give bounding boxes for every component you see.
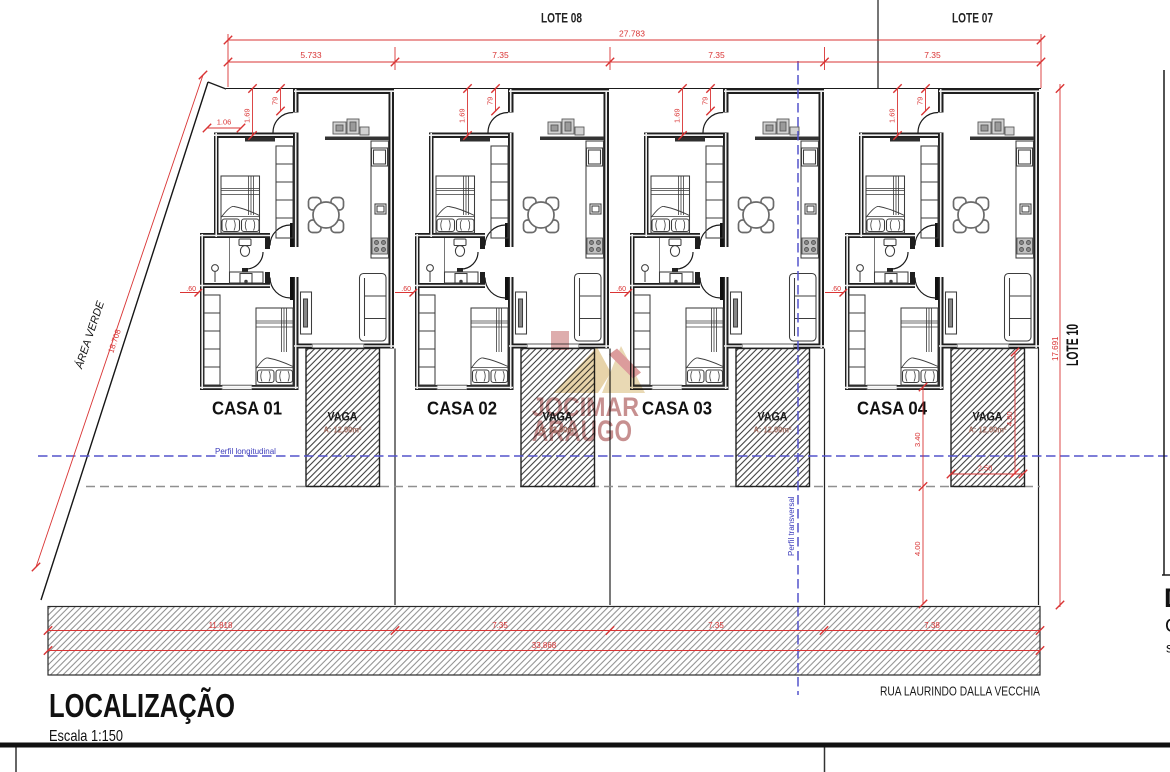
svg-text:7.35: 7.35 — [492, 621, 508, 630]
svg-text:4.80: 4.80 — [1005, 411, 1014, 426]
svg-text:D: D — [1164, 583, 1170, 613]
svg-text:7.35: 7.35 — [708, 621, 724, 630]
svg-text:CASA 01: CASA 01 — [212, 398, 282, 419]
svg-text:7.38: 7.38 — [924, 621, 940, 630]
svg-text:LOTE 07: LOTE 07 — [952, 11, 993, 26]
svg-text:11.818: 11.818 — [209, 621, 233, 630]
svg-text:Perfil longitudinal: Perfil longitudinal — [215, 447, 276, 456]
svg-text:17.691: 17.691 — [1051, 336, 1060, 361]
svg-text:CASA 02: CASA 02 — [427, 398, 497, 419]
svg-text:1.06: 1.06 — [217, 118, 232, 127]
svg-text:3.40: 3.40 — [913, 432, 922, 447]
svg-text:A: 12,00m²: A: 12,00m² — [539, 425, 577, 435]
svg-text:RUA LAURINDO DALLA VECCHIA: RUA LAURINDO DALLA VECCHIA — [880, 685, 1041, 699]
svg-text:Escala 1:150: Escala 1:150 — [49, 728, 123, 745]
svg-text:CASA 04: CASA 04 — [857, 398, 928, 419]
svg-text:5.733: 5.733 — [300, 50, 322, 60]
svg-text:7.35: 7.35 — [492, 50, 509, 60]
svg-text:s: s — [1166, 641, 1170, 656]
svg-text:4.00: 4.00 — [913, 541, 922, 556]
svg-text:LOTE 10: LOTE 10 — [1063, 324, 1082, 366]
svg-text:CASA 03: CASA 03 — [642, 398, 712, 419]
svg-text:27.783: 27.783 — [619, 29, 645, 39]
svg-text:2.50: 2.50 — [978, 464, 993, 473]
svg-text:33.868: 33.868 — [532, 641, 557, 650]
svg-text:LOCALIZAÇÃO: LOCALIZAÇÃO — [49, 687, 235, 724]
svg-text:Perfil transversal: Perfil transversal — [787, 496, 796, 556]
svg-text:7.35: 7.35 — [924, 50, 941, 60]
svg-text:LOTE 08: LOTE 08 — [541, 11, 582, 26]
svg-text:C: C — [1165, 616, 1170, 637]
svg-text:7.35: 7.35 — [708, 50, 725, 60]
svg-text:VAGA: VAGA — [543, 410, 573, 424]
